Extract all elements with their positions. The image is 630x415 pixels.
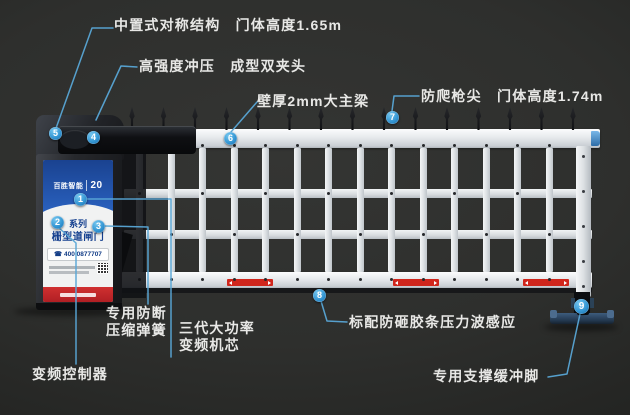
marker-6: 6 [224,132,237,145]
callout-line: 压缩弹簧 [106,322,167,339]
leader-line-7 [392,96,419,111]
marker-2: 2 [51,216,64,229]
callout-pressure-sensor: 标配防砸胶条压力波感应 [349,314,516,331]
callout-line: 专用防断 [106,305,167,322]
leader-line-4 [96,66,137,120]
leader-line-9 [548,314,580,377]
callout-inverter-core: 三代大功率 变频机芯 [179,320,255,353]
marker-9: 9 [574,299,589,314]
marker-1: 1 [74,193,87,206]
leader-line-2 [59,228,76,364]
leader-line-6 [231,102,257,132]
marker-3: 3 [92,220,105,233]
callout-main-beam: 壁厚2mm大主梁 [257,93,369,110]
callout-anti-climb-spikes: 防爬枪尖 门体高度1.74m [421,88,604,105]
callout-compression-spring: 专用防断 压缩弹簧 [106,305,167,338]
callout-line: 变频机芯 [179,337,255,354]
leader-lines [0,0,630,415]
marker-4: 4 [87,131,100,144]
callout-inverter-controller: 变频控制器 [32,366,108,383]
leader-line-8 [321,301,347,322]
callout-line: 三代大功率 [179,320,255,337]
leader-line-5 [55,28,113,131]
callout-center-structure: 中置式对称结构 门体高度1.65m [114,17,342,34]
marker-7: 7 [386,111,399,124]
callout-stamped-clamp: 高强度冲压 成型双夹头 [139,58,306,75]
leader-line-3 [104,226,148,304]
marker-8: 8 [313,289,326,302]
barrier-gate-product-diagram: 百胜智能20 系列 栅型道闸门 ☎ 400 0877707 1 2 3 4 5 … [0,0,630,415]
marker-5: 5 [49,127,62,140]
callout-buffer-foot: 专用支撑缓冲脚 [433,368,539,385]
